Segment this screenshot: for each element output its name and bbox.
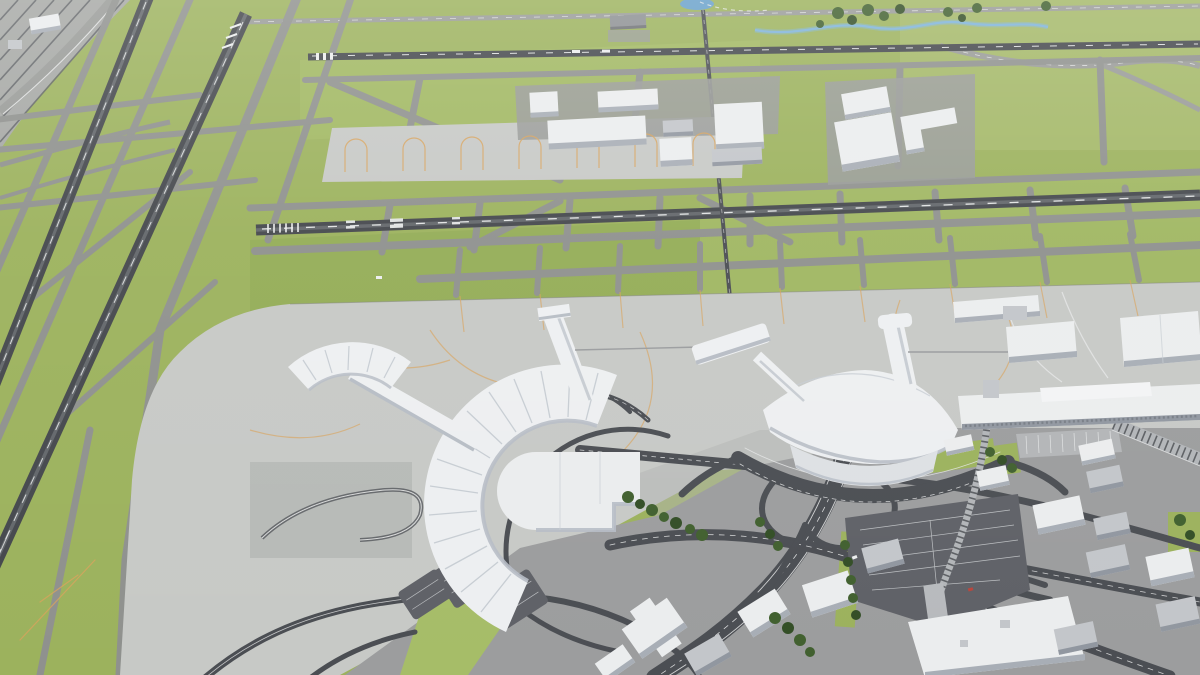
atmosphere-haze [0, 0, 1200, 675]
airport-3d-render [0, 0, 1200, 675]
airport-scene [0, 0, 1200, 675]
